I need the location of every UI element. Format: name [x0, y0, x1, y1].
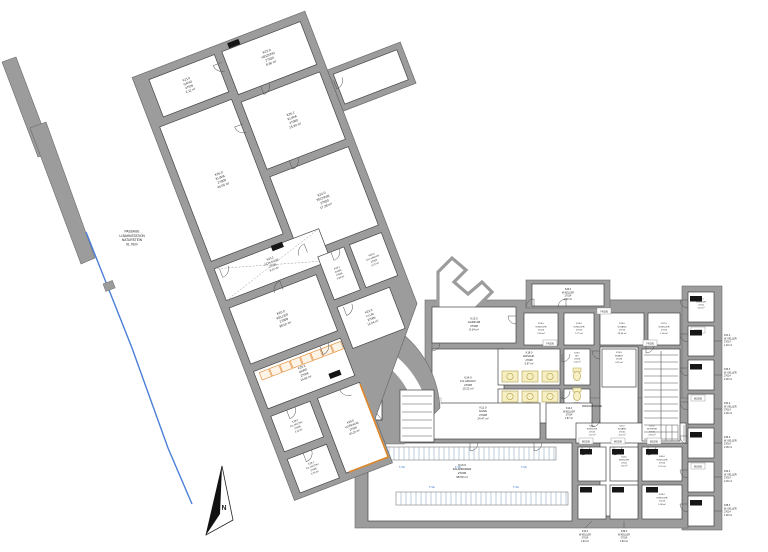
washing-machine	[522, 371, 538, 382]
door-tag-box	[646, 487, 658, 493]
room-label: K36.0W. KELLER270142.06 m²	[724, 436, 737, 449]
north-arrow: N	[206, 466, 233, 535]
stair-flight	[400, 390, 434, 442]
washing-machine	[502, 371, 518, 382]
door-tag-box	[690, 500, 702, 506]
door-size-text: 80/200	[614, 440, 622, 444]
door-size-text: 80/200	[582, 440, 590, 444]
rack-count-label: 5 Stk	[521, 465, 528, 469]
door-tag-box	[612, 449, 624, 455]
door-tag-box	[690, 432, 702, 438]
toilet	[573, 371, 580, 380]
rack-count-label: 5 Stk	[513, 485, 520, 489]
washing-machine	[542, 391, 558, 402]
toilet	[573, 391, 580, 400]
door-size-text: 74/200	[546, 342, 554, 346]
room-label: K33.0W. KELLER270142.06 m²	[724, 368, 737, 381]
room-label: K31.0W. KELLER270141.20 m²	[724, 334, 737, 347]
door-size-text: 74/200	[600, 310, 608, 314]
floorplan-page: PASSAGEU-BAHNSTATIONNATURSTEIN91.76m²K13…	[0, 0, 768, 552]
door-size-text: 80/200	[694, 397, 702, 401]
door-tag-box	[580, 449, 592, 455]
door-tag-box	[612, 487, 624, 493]
door-size-text: 80/200	[694, 465, 702, 469]
door-tag-box	[646, 449, 658, 455]
door-tag-box	[690, 330, 702, 336]
door-size-text: 80/200	[650, 440, 658, 444]
room-label: K42.0W.KELLER270141.63 m²	[579, 530, 591, 543]
room-label: K34.0W. KELLER270142.06 m²	[724, 402, 737, 415]
property-line	[86, 232, 192, 504]
rack-count-label: 5 Stk	[455, 465, 462, 469]
floorplan-canvas: PASSAGEU-BAHNSTATIONNATURSTEIN91.76m²K13…	[0, 0, 768, 552]
door-tag-box	[690, 364, 702, 370]
door-tag-box	[580, 487, 592, 493]
rack-count-label: 5 Stk	[399, 465, 406, 469]
rack-count-label: 5 Stk	[429, 485, 436, 489]
room-label: PASSAGEU-BAHNSTATIONNATURSTEIN91.76m²	[119, 230, 145, 247]
line-marker-box	[103, 280, 115, 291]
room	[368, 443, 572, 521]
door-tag-box	[690, 296, 702, 302]
north-letter: N	[221, 505, 226, 512]
passage-wall-strip	[30, 122, 95, 264]
room-label: K32.0W. KELLER270142.26 m²	[724, 470, 737, 483]
washing-machine	[502, 391, 518, 402]
room-label: K39.0W.KELLER270141.83 m²	[618, 530, 630, 543]
room-label: K38.0W. KELLER270141.90 m²	[724, 504, 737, 517]
washing-machine	[542, 371, 558, 382]
washing-machine	[522, 391, 538, 402]
door-size-text: 74/200	[646, 342, 654, 346]
waschkueche-label: WASCHKÜCHE	[582, 404, 602, 408]
